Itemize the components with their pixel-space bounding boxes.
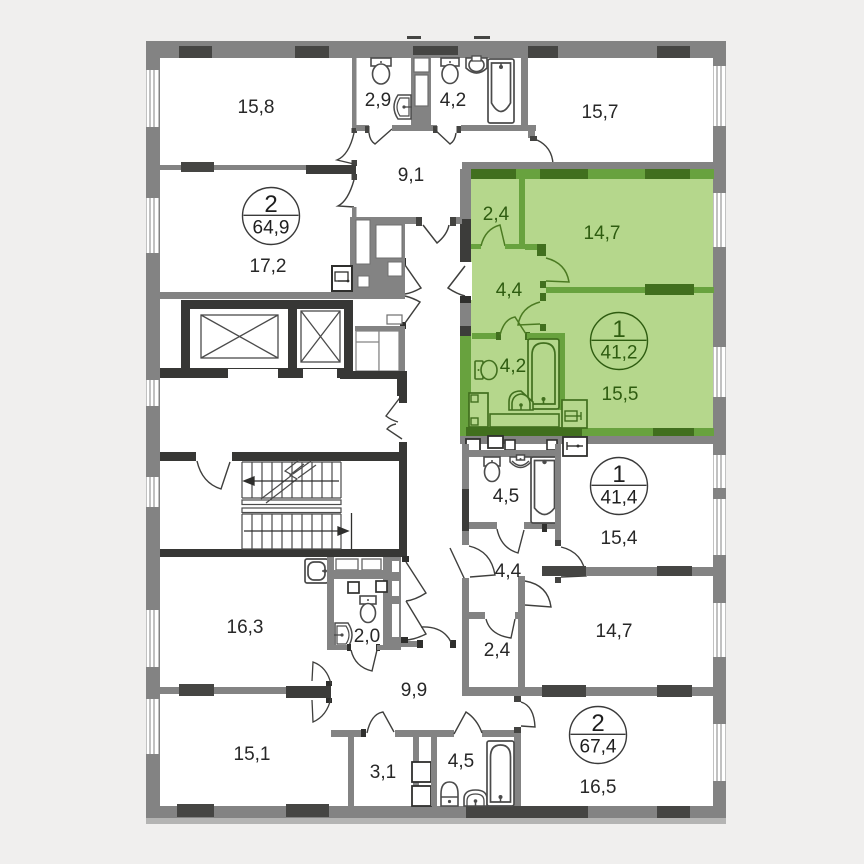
svg-text:2,4: 2,4 (484, 640, 511, 661)
svg-text:9,1: 9,1 (398, 165, 424, 186)
svg-text:4,5: 4,5 (493, 486, 519, 507)
svg-text:15,1: 15,1 (234, 744, 271, 765)
svg-text:2,0: 2,0 (354, 626, 380, 647)
svg-text:14,7: 14,7 (584, 223, 621, 244)
svg-text:9,9: 9,9 (401, 680, 427, 701)
svg-text:4,5: 4,5 (448, 751, 474, 772)
svg-text:15,5: 15,5 (602, 384, 639, 405)
svg-text:16,5: 16,5 (580, 777, 617, 798)
svg-text:41,4: 41,4 (601, 488, 638, 509)
svg-text:15,8: 15,8 (238, 97, 275, 118)
svg-text:4,2: 4,2 (440, 90, 466, 111)
svg-text:16,3: 16,3 (227, 617, 264, 638)
svg-text:15,7: 15,7 (582, 102, 619, 123)
svg-text:64,9: 64,9 (253, 218, 290, 239)
svg-text:67,4: 67,4 (580, 737, 617, 758)
svg-text:2: 2 (591, 710, 604, 737)
svg-text:3,1: 3,1 (370, 762, 396, 783)
svg-text:4,4: 4,4 (496, 280, 523, 301)
svg-text:2,9: 2,9 (365, 90, 391, 111)
svg-text:4,4: 4,4 (495, 561, 522, 582)
svg-text:17,2: 17,2 (250, 256, 287, 277)
svg-text:2,4: 2,4 (483, 204, 510, 225)
svg-text:1: 1 (612, 461, 625, 488)
svg-text:1: 1 (612, 316, 625, 343)
svg-text:2: 2 (264, 191, 277, 218)
svg-text:14,7: 14,7 (596, 621, 633, 642)
svg-text:15,4: 15,4 (601, 528, 638, 549)
svg-text:41,2: 41,2 (601, 343, 638, 364)
svg-text:4,2: 4,2 (500, 356, 526, 377)
